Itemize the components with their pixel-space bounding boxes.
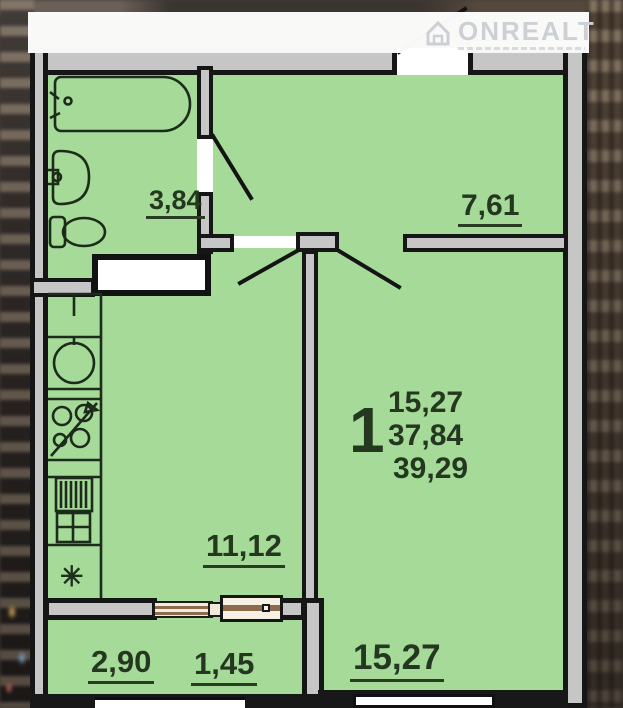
bathtub bbox=[55, 77, 190, 131]
house-icon bbox=[422, 17, 454, 49]
label-balcony-area-b: 1,45 bbox=[191, 648, 257, 686]
label-bathroom-area: 3,84 bbox=[146, 186, 205, 219]
kitchen-sink-bowl bbox=[54, 343, 94, 383]
label-area-total: 37,84 bbox=[388, 420, 463, 452]
label-living-room-area: 15,27 bbox=[350, 640, 444, 682]
door-swing-kitchen bbox=[240, 251, 297, 283]
label-area-overall: 39,29 bbox=[393, 453, 468, 485]
stove-burner-4 bbox=[71, 429, 89, 447]
stove-burner-1 bbox=[53, 407, 71, 425]
label-kitchen-area: 11,12 bbox=[203, 530, 285, 568]
label-balcony-area-a: 2,90 bbox=[88, 646, 154, 684]
label-area-living: 15,27 bbox=[388, 387, 463, 419]
door-swing-living-room bbox=[339, 251, 399, 287]
watermark-tagline bbox=[458, 47, 585, 50]
oven-grill-lines bbox=[61, 481, 86, 508]
floorplan-screenshot: { "watermark": { "brand": "ONREALT", "ic… bbox=[0, 0, 623, 708]
stove-diagonal bbox=[51, 403, 97, 456]
toilet-bowl bbox=[63, 218, 105, 246]
bathtub-drain bbox=[65, 98, 72, 105]
cabinet-panes-lines bbox=[57, 513, 90, 542]
watermark-brand: ONREALT bbox=[458, 16, 596, 47]
door-swing-bathroom bbox=[213, 136, 251, 198]
label-rooms-count: 1 bbox=[349, 397, 385, 464]
fixtures-layer: ✳ bbox=[0, 0, 623, 708]
label-hallway-area: 7,61 bbox=[458, 190, 522, 227]
fridge-snowflake-icon: ✳ bbox=[60, 561, 83, 592]
